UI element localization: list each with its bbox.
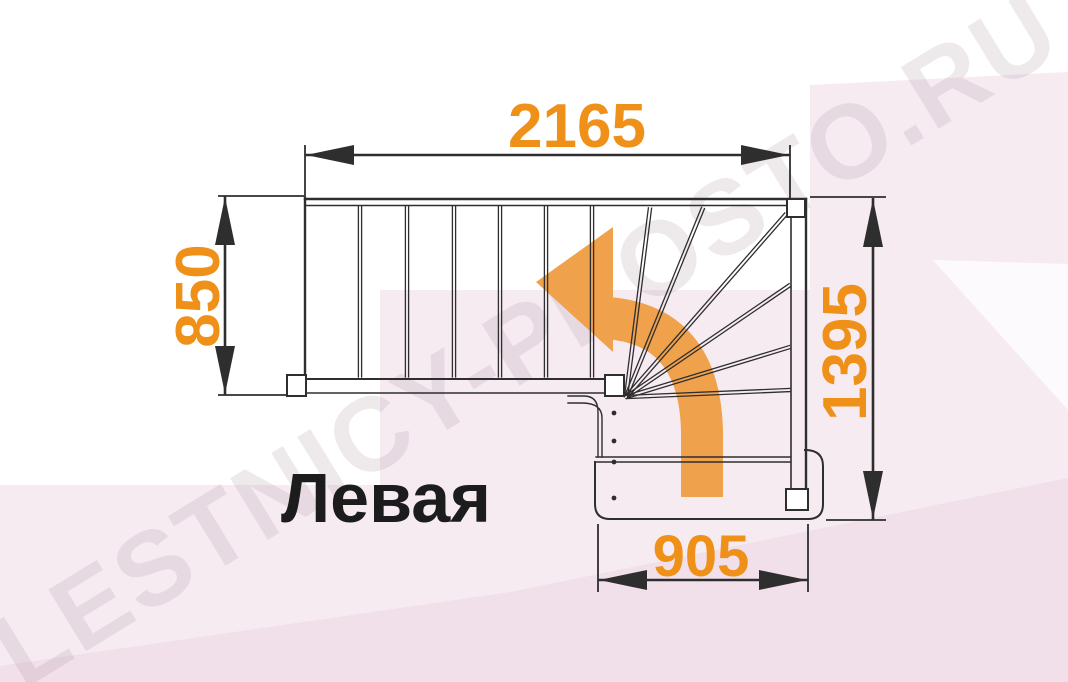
stair-plan-page: LESTNICY-PROSTO.RU bbox=[0, 0, 1068, 682]
post-winder-corner bbox=[605, 375, 624, 396]
post-bottom-left bbox=[287, 375, 306, 396]
post-top-right bbox=[787, 199, 805, 217]
dimension-right-value: 1395 bbox=[811, 283, 880, 421]
dot bbox=[612, 439, 617, 444]
stair-plan-drawing: LESTNICY-PROSTO.RU bbox=[0, 0, 1068, 682]
dimension-bottom-value: 905 bbox=[653, 524, 750, 589]
dot bbox=[612, 411, 617, 416]
dimension-top-value: 2165 bbox=[508, 92, 646, 161]
plan-variant-label: Левая bbox=[281, 459, 491, 537]
dot bbox=[612, 496, 617, 501]
post-bottom-right bbox=[786, 489, 808, 510]
dimension-left-value: 850 bbox=[164, 244, 233, 347]
dot bbox=[612, 460, 617, 465]
